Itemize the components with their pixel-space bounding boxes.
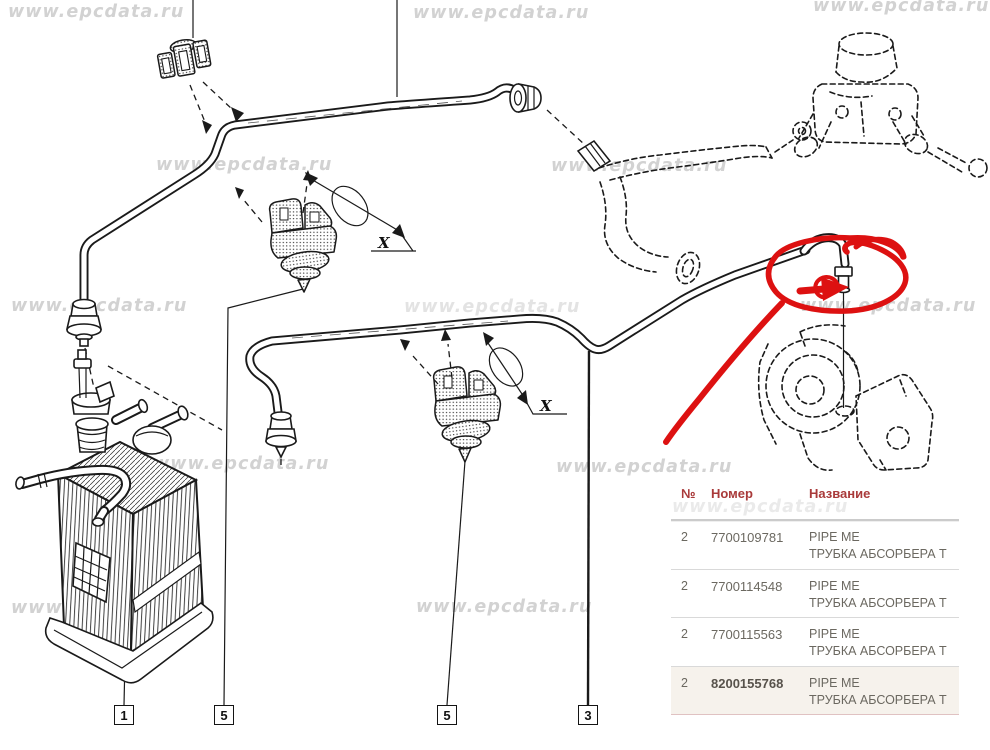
parts-table-rows: 27700109781PIPE MEТРУБКА АБСОРБЕРА Т2770… — [671, 521, 959, 715]
callout-box-5a: 5 — [214, 705, 234, 725]
callout-label: 5 — [443, 708, 450, 723]
row-part-name: PIPE MEТРУБКА АБСОРБЕРА Т — [809, 578, 959, 618]
row-part-number: 7700115563 — [711, 626, 809, 666]
purge-valve-2 — [434, 367, 501, 462]
table-row[interactable]: 27700115563PIPE MEТРУБКА АБСОРБЕРА Т — [671, 618, 959, 667]
callout-label: 5 — [220, 708, 227, 723]
highlight-annotation — [666, 238, 906, 442]
part-name-latin: PIPE ME — [809, 626, 959, 643]
col-header-name: Название — [809, 485, 959, 519]
callout-label: 1 — [120, 708, 127, 723]
circled-elbow-connector — [804, 238, 852, 408]
quick-connector — [510, 84, 585, 145]
row-position-number: 2 — [681, 626, 711, 666]
part-name-latin: PIPE ME — [809, 578, 959, 595]
table-row[interactable]: 27700109781PIPE MEТРУБКА АБСОРБЕРА Т — [671, 521, 959, 570]
callout-label: 3 — [584, 708, 591, 723]
epc-catalog-page: www.epcdata.ruwww.epcdata.ruwww.epcdata.… — [0, 0, 990, 750]
part-name-russian: ТРУБКА АБСОРБЕРА Т — [809, 546, 959, 563]
row-position-number: 2 — [681, 578, 711, 618]
row-part-number: 7700114548 — [711, 578, 809, 618]
part-name-latin: PIPE ME — [809, 529, 959, 546]
charcoal-canister — [15, 350, 213, 683]
row-position-number: 2 — [681, 529, 711, 569]
part-name-russian: ТРУБКА АБСОРБЕРА Т — [809, 595, 959, 612]
row-position-number: 2 — [681, 675, 711, 715]
table-row[interactable]: 28200155768PIPE MEТРУБКА АБСОРБЕРА Т — [671, 667, 959, 716]
table-row[interactable]: 27700114548PIPE MEТРУБКА АБСОРБЕРА Т — [671, 570, 959, 619]
row-part-name: PIPE MEТРУБКА АБСОРБЕРА Т — [809, 675, 959, 715]
callout-box-3: 3 — [578, 705, 598, 725]
col-header-part: Номер — [711, 485, 809, 519]
row-part-number: 7700109781 — [711, 529, 809, 569]
row-part-name: PIPE MEТРУБКА АБСОРБЕРА Т — [809, 626, 959, 666]
lower-pipe-connector — [266, 412, 296, 469]
vapor-pump — [791, 33, 987, 177]
part-name-russian: ТРУБКА АБСОРБЕРА Т — [809, 692, 959, 709]
throttle-body — [759, 325, 933, 470]
row-part-name: PIPE MEТРУБКА АБСОРБЕРА Т — [809, 529, 959, 569]
lower-pipe — [250, 250, 806, 412]
callout-box-5b: 5 — [437, 705, 457, 725]
dimension-label: X — [539, 397, 553, 415]
parts-table: № Номер Название 27700109781PIPE MEТРУБК… — [671, 483, 959, 715]
callout-box-1: 1 — [114, 705, 134, 725]
col-header-num: № — [681, 485, 711, 519]
parts-table-header: № Номер Название — [671, 483, 959, 521]
part-name-latin: PIPE ME — [809, 675, 959, 692]
part-name-russian: ТРУБКА АБСОРБЕРА Т — [809, 643, 959, 660]
retainer-clip — [156, 36, 212, 79]
row-part-number: 8200155768 — [711, 675, 809, 715]
dimension-label: X — [377, 234, 391, 252]
